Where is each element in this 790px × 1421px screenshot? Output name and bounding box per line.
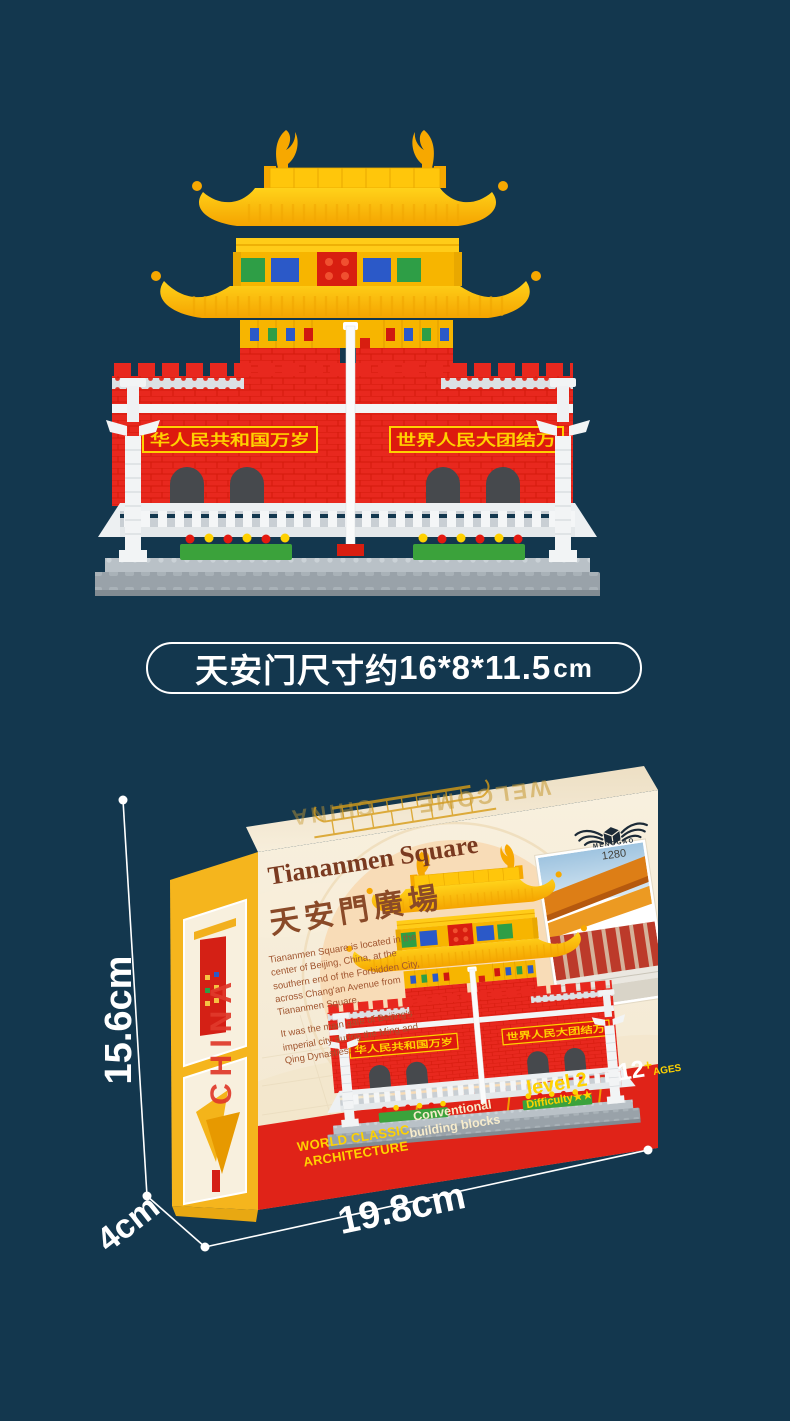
box-description: Tiananmen Square is located in the cente… (268, 930, 440, 1077)
info-bar-age-label: AGES (652, 1063, 682, 1078)
product-detail-image: 华人民共和国万岁 世界人民大团结万 (0, 0, 790, 1421)
info-bar-difficulty-stars: ★★ (572, 1089, 593, 1104)
side-panel-china-text: CHINA (198, 950, 246, 1130)
model-artwork (95, 130, 600, 596)
size-caption-value: 16*8*11.5 (399, 649, 551, 687)
dimension-height-label: 15.6cm (98, 940, 138, 1100)
size-caption-unit: cm (553, 653, 593, 684)
size-caption-pill: 天安门尺寸约16*8*11.5cm (146, 642, 642, 694)
info-bar-age-plus: + (643, 1056, 654, 1073)
size-caption-prefix: 天安门尺寸约 (195, 644, 399, 692)
assembled-model-photo: 华人民共和国万岁 世界人民大团结万 (90, 120, 610, 600)
info-bar-age-number: 12 (616, 1056, 647, 1087)
